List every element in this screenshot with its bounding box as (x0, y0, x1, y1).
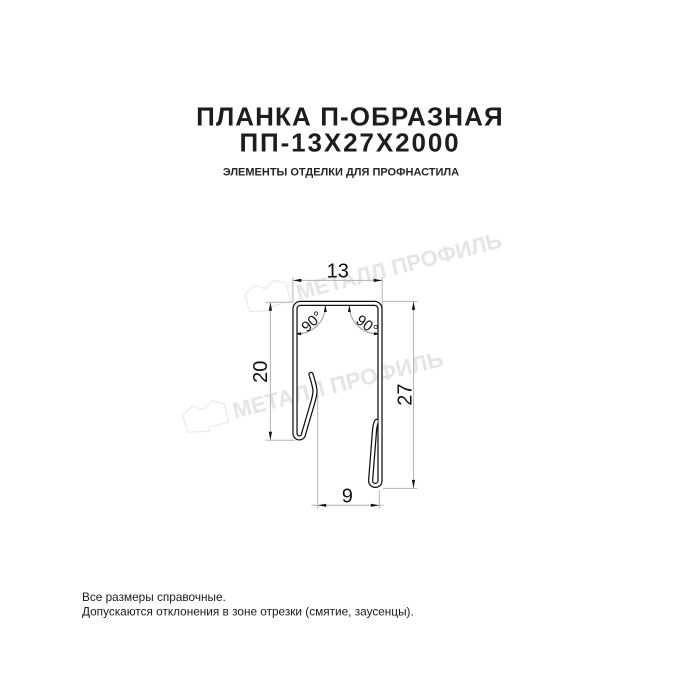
svg-text:90°: 90° (298, 308, 326, 336)
svg-text:ЭЛЕМЕНТЫ ОТДЕЛКИ ДЛЯ ПРОФНАСТИ: ЭЛЕМЕНТЫ ОТДЕЛКИ ДЛЯ ПРОФНАСТИЛА (223, 166, 459, 178)
svg-text:9: 9 (342, 486, 353, 508)
svg-text:МЕТАЛЛ ПРОФИЛЬ: МЕТАЛЛ ПРОФИЛЬ (293, 228, 504, 305)
svg-text:Допускаются отклонения в зоне: Допускаются отклонения в зоне отрезки (с… (82, 604, 414, 618)
svg-text:20: 20 (250, 361, 272, 383)
svg-text:ПП-13Х27Х2000: ПП-13Х27Х2000 (239, 127, 460, 157)
svg-text:Все размеры справочные.: Все размеры справочные. (82, 590, 226, 604)
svg-text:27: 27 (394, 383, 416, 405)
svg-text:13: 13 (327, 261, 349, 283)
svg-text:90°: 90° (352, 312, 380, 339)
